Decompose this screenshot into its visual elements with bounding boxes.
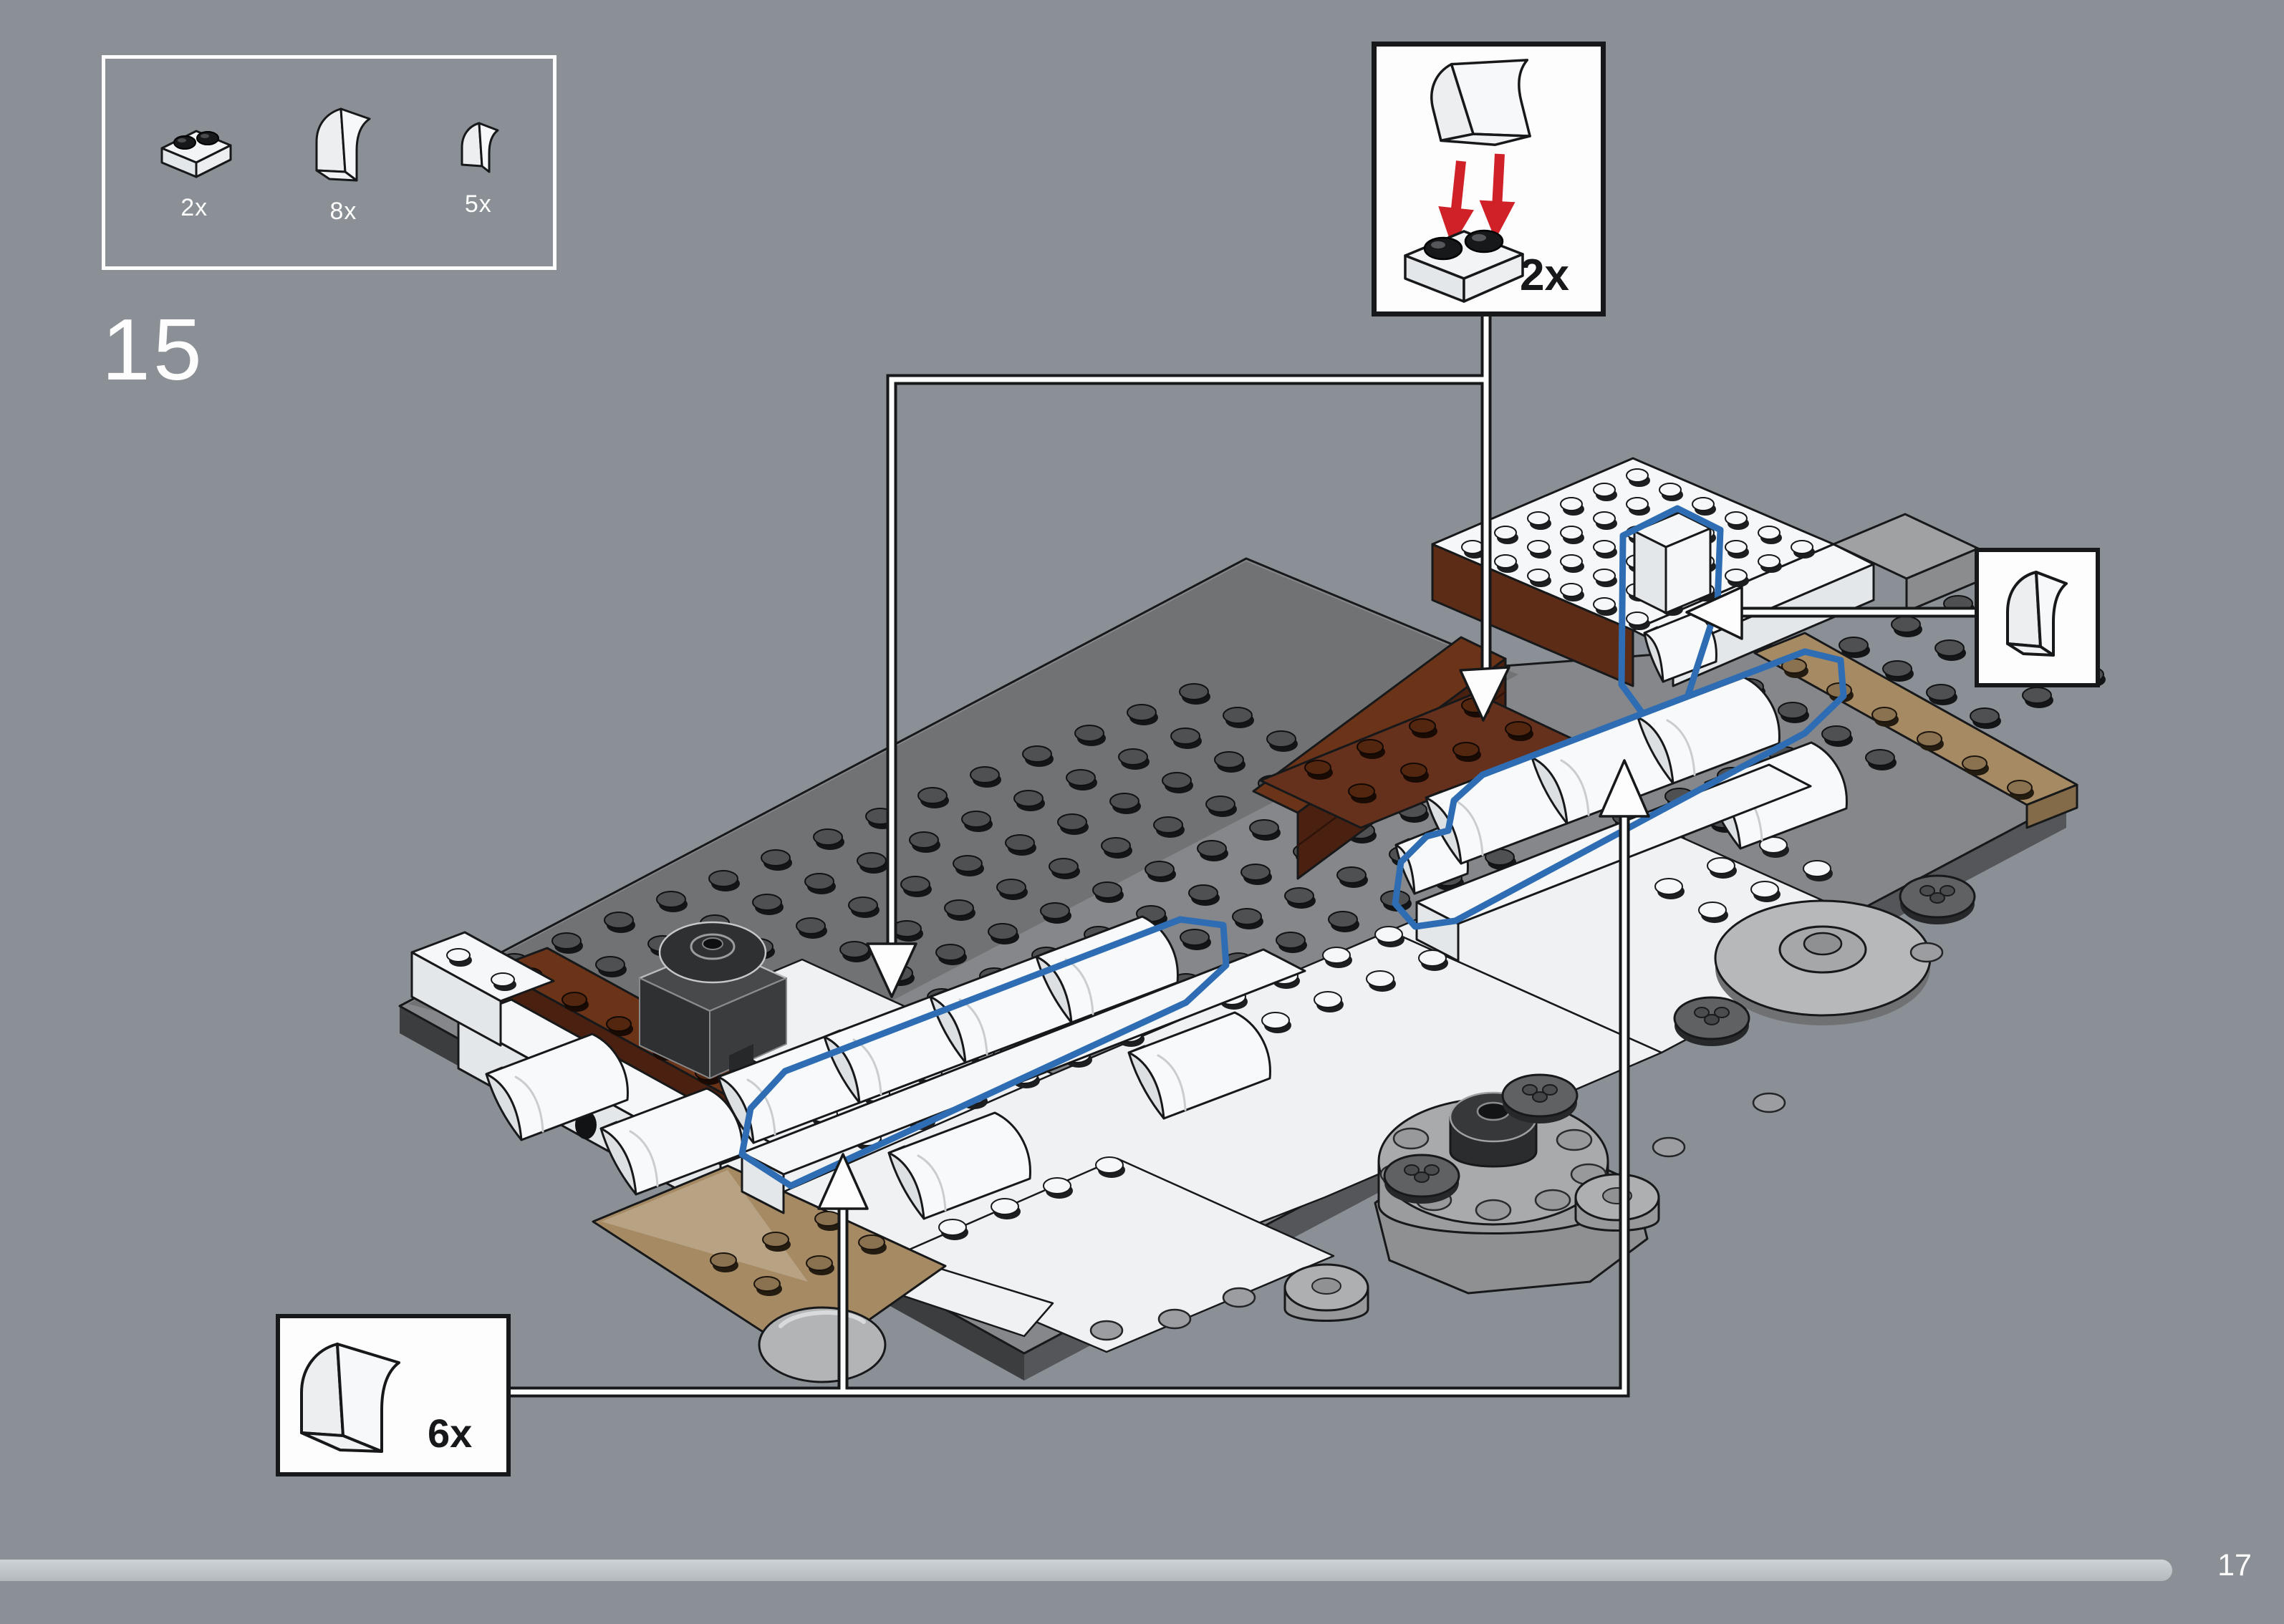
slope-curved-2x1-icon <box>1424 47 1546 158</box>
slope-curved-1x1-icon <box>439 107 518 186</box>
page-number: 17 <box>2199 1548 2270 1583</box>
callout-count-label: 6x <box>428 1410 472 1456</box>
step-number: 15 <box>102 299 205 400</box>
progress-bar <box>0 1560 2172 1581</box>
plate-1x2-black-studs-icon <box>140 104 248 190</box>
parts-list-item: 2x <box>140 104 248 222</box>
parts-list-box: 2x 8x 5x <box>102 55 556 270</box>
slope-curved-2x1-icon <box>289 100 397 193</box>
parts-list-item: 5x <box>439 107 518 218</box>
callout-count-label: 2x <box>1520 250 1569 301</box>
plate-1x2-black-studs-icon <box>1405 231 1523 301</box>
callout-piece-box-right <box>1975 548 2100 687</box>
part-count-label: 2x <box>180 194 208 222</box>
callout-subassembly-box: 2x <box>1372 42 1606 316</box>
slope-curved-2x1-icon <box>280 1318 423 1472</box>
callout-piece-box-bottom: 6x <box>276 1314 511 1476</box>
slope-curved-1x1-icon <box>1979 552 2096 683</box>
part-count-label: 5x <box>465 190 492 218</box>
parts-list-item: 8x <box>289 100 397 226</box>
part-count-label: 8x <box>330 198 357 226</box>
